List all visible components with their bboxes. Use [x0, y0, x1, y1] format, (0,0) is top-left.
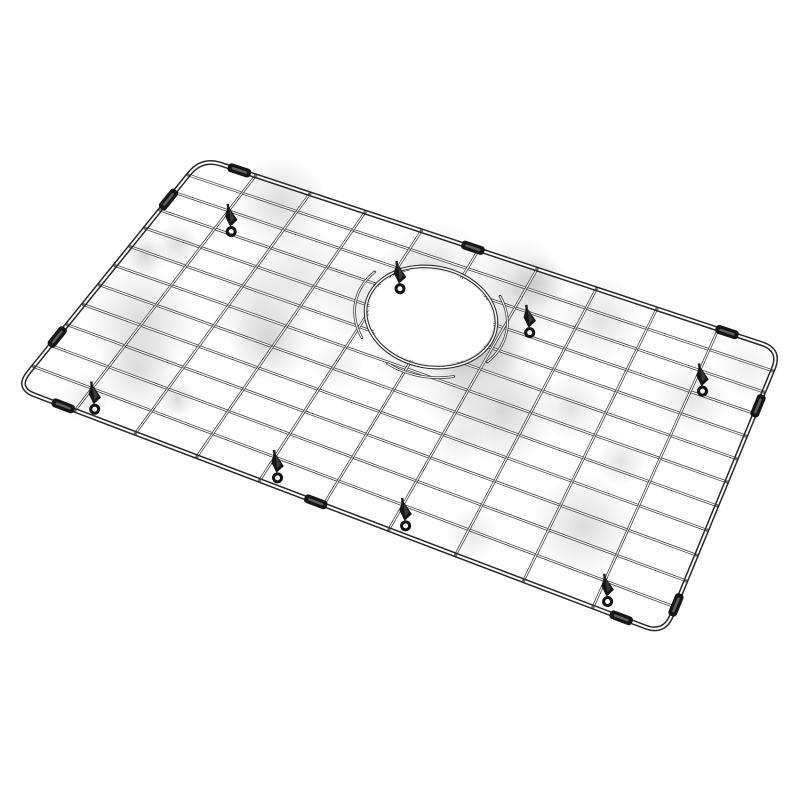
rubber-bumper [157, 187, 179, 211]
rubber-bumper [714, 324, 740, 340]
rubber-bumper [303, 493, 329, 510]
rubber-bumper [226, 162, 252, 178]
sink-grid-illustration [0, 0, 800, 800]
product-photo [0, 0, 800, 800]
rubber-bumper [46, 325, 68, 349]
rubber-foot [600, 573, 615, 606]
rubber-bumper [608, 609, 634, 626]
